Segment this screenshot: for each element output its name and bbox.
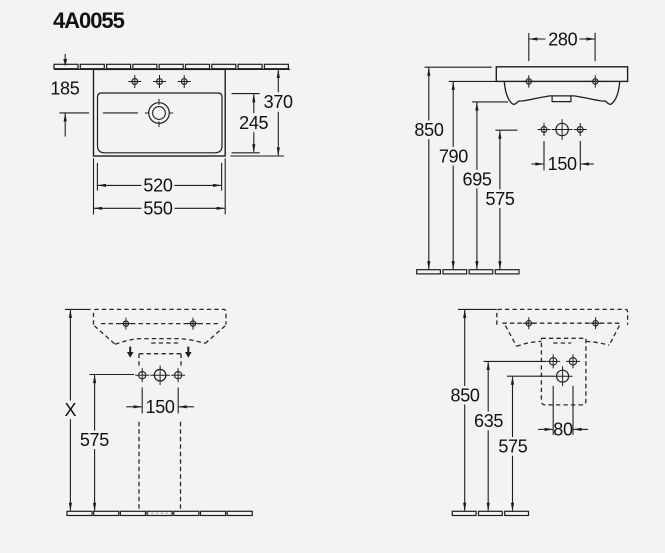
- svg-text:150: 150: [146, 397, 175, 417]
- svg-text:X: X: [64, 400, 76, 420]
- svg-text:245: 245: [239, 113, 268, 133]
- svg-text:575: 575: [498, 437, 527, 457]
- svg-text:520: 520: [143, 176, 172, 196]
- svg-text:185: 185: [50, 79, 79, 99]
- svg-text:790: 790: [439, 146, 468, 166]
- svg-text:550: 550: [143, 199, 172, 219]
- svg-text:635: 635: [474, 411, 503, 431]
- svg-text:80: 80: [553, 420, 573, 440]
- svg-text:150: 150: [548, 154, 577, 174]
- svg-text:695: 695: [463, 169, 492, 189]
- svg-text:575: 575: [486, 189, 515, 209]
- svg-text:280: 280: [548, 29, 577, 49]
- svg-text:575: 575: [80, 430, 109, 450]
- svg-text:370: 370: [264, 92, 293, 112]
- svg-text:850: 850: [451, 385, 480, 405]
- svg-text:4A0055: 4A0055: [53, 8, 125, 33]
- svg-text:850: 850: [414, 120, 443, 140]
